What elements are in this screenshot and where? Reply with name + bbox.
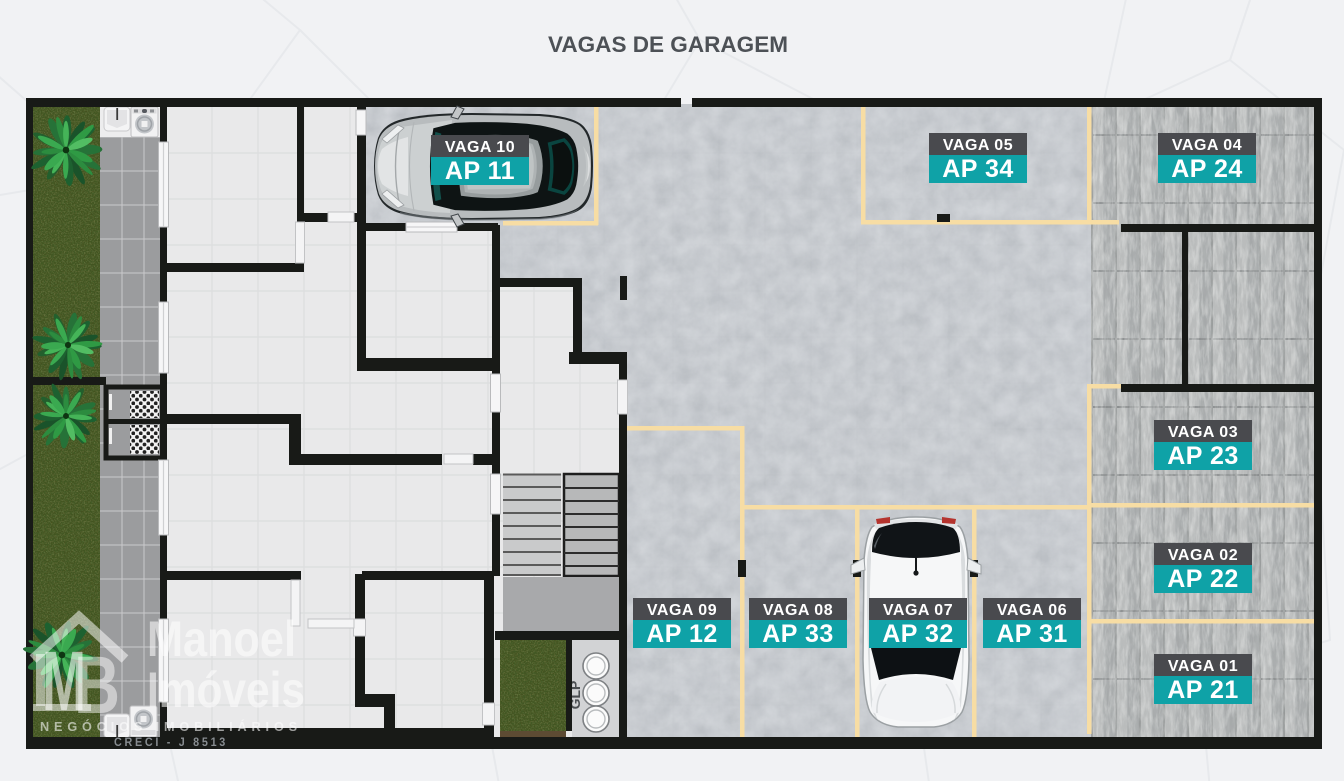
svg-text:VAGA 01: VAGA 01 [1168, 658, 1238, 675]
svg-text:B: B [74, 640, 120, 731]
svg-text:AP 21: AP 21 [1167, 676, 1239, 704]
svg-text:VAGA 07: VAGA 07 [883, 602, 953, 619]
svg-text:VAGA 08: VAGA 08 [763, 602, 833, 619]
svg-text:NEGÓCIOS IMOBILIÁRIOS: NEGÓCIOS IMOBILIÁRIOS [40, 719, 302, 734]
svg-text:AP 32: AP 32 [882, 620, 954, 648]
svg-text:AP 11: AP 11 [445, 157, 515, 185]
svg-text:AP 23: AP 23 [1167, 442, 1239, 470]
svg-text:VAGA 05: VAGA 05 [943, 137, 1013, 154]
svg-text:Imóveis: Imóveis [147, 662, 305, 718]
svg-text:VAGA 06: VAGA 06 [997, 602, 1067, 619]
svg-text:CRECI - J 8513: CRECI - J 8513 [114, 735, 228, 749]
svg-text:VAGA 03: VAGA 03 [1168, 424, 1238, 441]
svg-text:VAGA 09: VAGA 09 [647, 602, 717, 619]
svg-text:VAGAS DE GARAGEM: VAGAS DE GARAGEM [548, 32, 788, 57]
svg-text:AP 22: AP 22 [1167, 565, 1239, 593]
svg-text:VAGA 10: VAGA 10 [445, 139, 515, 156]
svg-text:AP 34: AP 34 [942, 155, 1014, 183]
svg-text:VAGA 02: VAGA 02 [1168, 547, 1238, 564]
svg-text:AP 31: AP 31 [996, 620, 1068, 648]
svg-text:AP 33: AP 33 [762, 620, 834, 648]
svg-text:AP 12: AP 12 [646, 620, 718, 648]
svg-text:VAGA 04: VAGA 04 [1172, 137, 1242, 154]
svg-text:AP 24: AP 24 [1171, 155, 1243, 183]
svg-text:Manoel: Manoel [147, 611, 296, 667]
